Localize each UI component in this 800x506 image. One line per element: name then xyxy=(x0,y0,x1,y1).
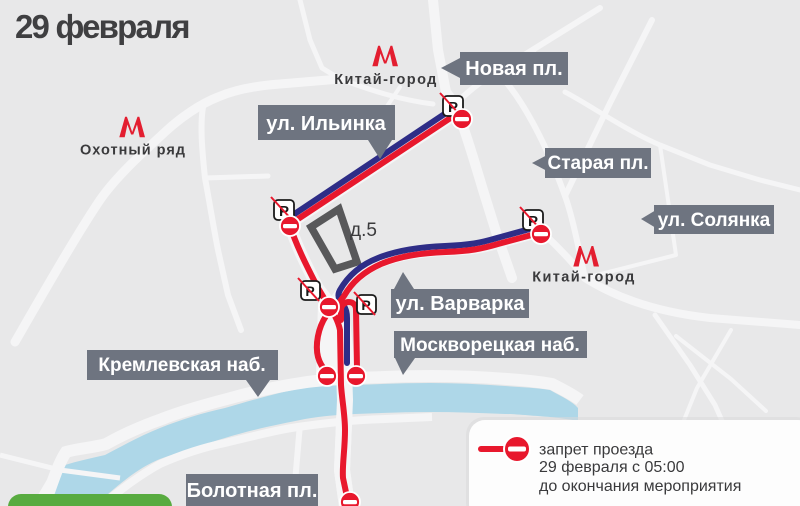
svg-text:Китай-город: Китай-город xyxy=(334,72,438,88)
svg-text:Кремлевская наб.: Кремлевская наб. xyxy=(98,355,265,376)
svg-text:Болотная пл.: Болотная пл. xyxy=(187,480,318,502)
svg-text:Охотный ряд: Охотный ряд xyxy=(80,143,186,159)
svg-text:д.5: д.5 xyxy=(350,220,377,241)
svg-text:29 февраля: 29 февраля xyxy=(15,8,189,45)
svg-text:29 февраля с 05:00: 29 февраля с 05:00 xyxy=(539,459,685,476)
svg-text:ул. Солянка: ул. Солянка xyxy=(658,210,771,231)
svg-text:Китай-город: Китай-город xyxy=(532,270,636,286)
svg-text:Старая пл.: Старая пл. xyxy=(548,153,649,174)
svg-text:запрет проезда: запрет проезда xyxy=(539,442,653,459)
svg-text:до окончания мероприятия: до окончания мероприятия xyxy=(539,478,741,495)
svg-text:ул. Варварка: ул. Варварка xyxy=(396,293,526,315)
svg-text:ул. Ильинка: ул. Ильинка xyxy=(266,113,386,135)
svg-text:Новая пл.: Новая пл. xyxy=(465,58,562,80)
svg-text:Москворецкая наб.: Москворецкая наб. xyxy=(400,335,580,356)
